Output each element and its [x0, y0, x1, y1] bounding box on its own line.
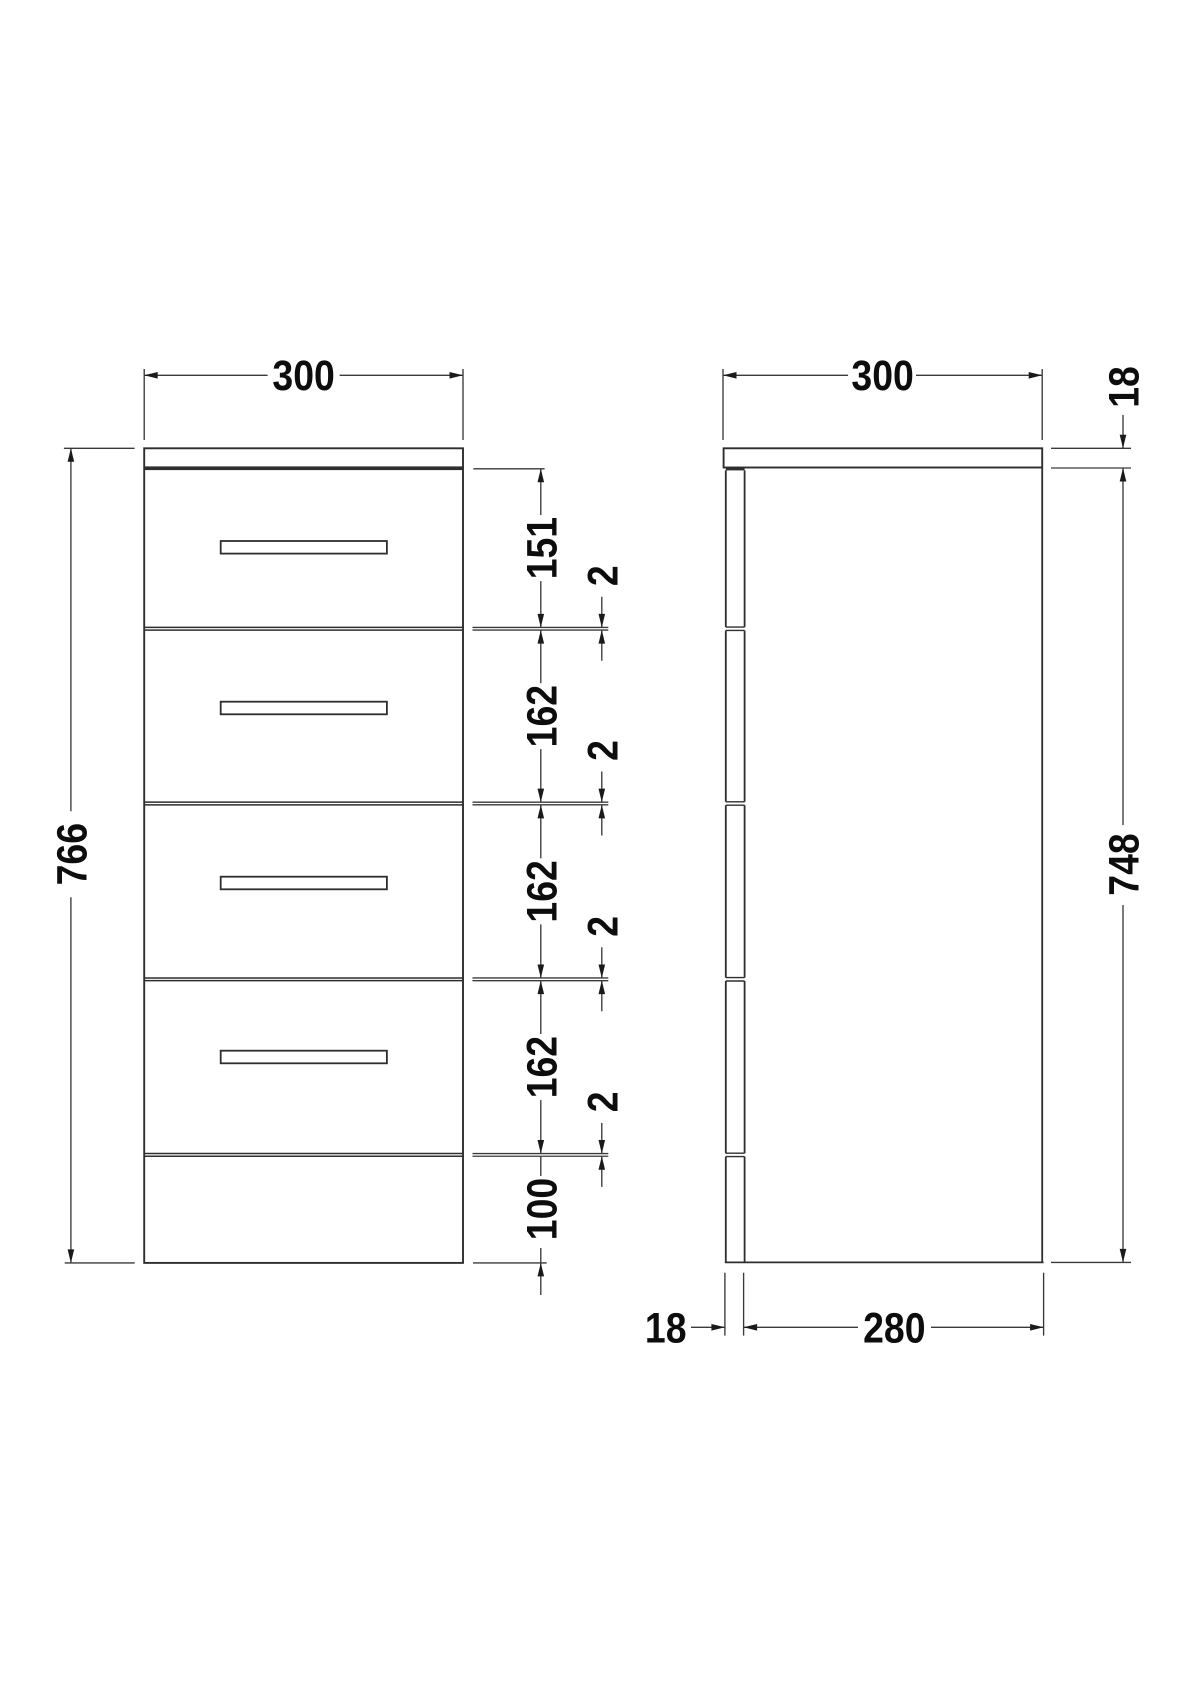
svg-text:100: 100: [518, 1178, 566, 1240]
svg-text:748: 748: [1100, 833, 1148, 895]
svg-text:2: 2: [579, 916, 627, 937]
svg-text:300: 300: [272, 351, 334, 399]
svg-text:2: 2: [579, 1091, 627, 1112]
svg-text:2: 2: [579, 740, 627, 761]
svg-text:18: 18: [1100, 366, 1148, 408]
svg-text:766: 766: [48, 823, 96, 885]
svg-text:300: 300: [851, 351, 913, 399]
svg-text:18: 18: [645, 1304, 687, 1352]
svg-text:162: 162: [518, 1036, 566, 1098]
svg-text:162: 162: [518, 860, 566, 922]
svg-text:280: 280: [863, 1304, 925, 1352]
svg-text:2: 2: [579, 565, 627, 586]
svg-text:162: 162: [518, 685, 566, 747]
svg-text:151: 151: [518, 517, 566, 579]
